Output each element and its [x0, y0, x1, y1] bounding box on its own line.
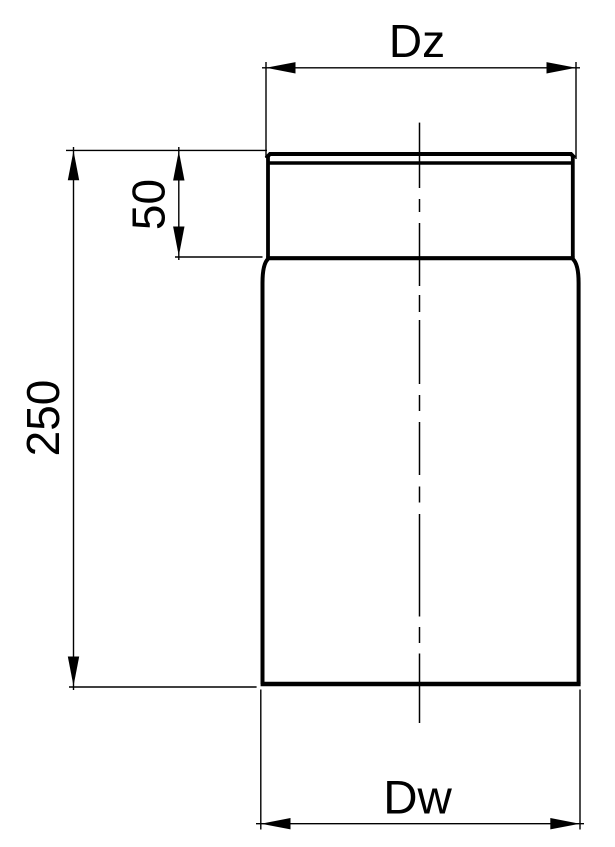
svg-text:Dw: Dw: [383, 772, 452, 825]
svg-text:50: 50: [123, 179, 175, 230]
svg-text:Dz: Dz: [389, 15, 445, 67]
svg-text:250: 250: [17, 380, 69, 457]
